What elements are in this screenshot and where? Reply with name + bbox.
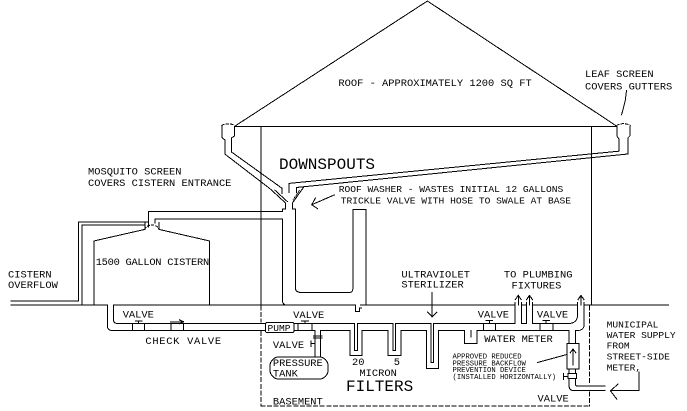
svg-text:FILTERS: FILTERS	[346, 378, 413, 396]
svg-text:OVERFLOW: OVERFLOW	[8, 280, 59, 292]
svg-text:FROM: FROM	[607, 340, 630, 351]
svg-text:1500 GALLON CISTERN: 1500 GALLON CISTERN	[96, 257, 210, 269]
svg-text:VALVE: VALVE	[293, 310, 324, 322]
svg-text:FIXTURES: FIXTURES	[512, 281, 562, 293]
svg-text:COVERS GUTTERS: COVERS GUTTERS	[585, 82, 672, 94]
svg-text:(INSTALLED HORIZONTALLY): (INSTALLED HORIZONTALLY)	[453, 374, 557, 382]
svg-text:STREET-SIDE: STREET-SIDE	[607, 351, 671, 362]
svg-text:VALVE: VALVE	[537, 310, 568, 322]
svg-text:VALVE: VALVE	[538, 394, 569, 406]
svg-text:ROOF WASHER - WASTES INITIAL 1: ROOF WASHER - WASTES INITIAL 12 GALLONS	[339, 184, 564, 195]
svg-text:DOWNSPOUTS: DOWNSPOUTS	[279, 156, 375, 174]
svg-text:VALVE: VALVE	[273, 340, 304, 352]
svg-text:PUMP: PUMP	[268, 323, 291, 334]
svg-text:TRICKLE VALVE WITH HOSE TO SWA: TRICKLE VALVE WITH HOSE TO SWALE AT BASE	[341, 196, 572, 207]
svg-text:METER,: METER,	[607, 363, 642, 374]
svg-text:VALVE: VALVE	[123, 310, 154, 322]
svg-text:ROOF - APPROXIMATELY 1200 SQ F: ROOF - APPROXIMATELY 1200 SQ FT	[338, 78, 531, 90]
svg-text:VALVE: VALVE	[478, 310, 509, 322]
svg-text:BASEMENT: BASEMENT	[273, 397, 323, 409]
svg-text:MOSQUITO SCREEN: MOSQUITO SCREEN	[88, 167, 182, 179]
svg-text:STERILIZER: STERILIZER	[401, 280, 463, 292]
svg-text:CHECK VALVE: CHECK VALVE	[145, 336, 221, 348]
svg-text:LEAF SCREEN: LEAF SCREEN	[585, 69, 654, 81]
svg-text:WATER METER: WATER METER	[484, 334, 553, 346]
svg-text:TANK: TANK	[273, 369, 299, 381]
svg-text:COVERS CISTERN ENTRANCE: COVERS CISTERN ENTRANCE	[88, 178, 231, 190]
